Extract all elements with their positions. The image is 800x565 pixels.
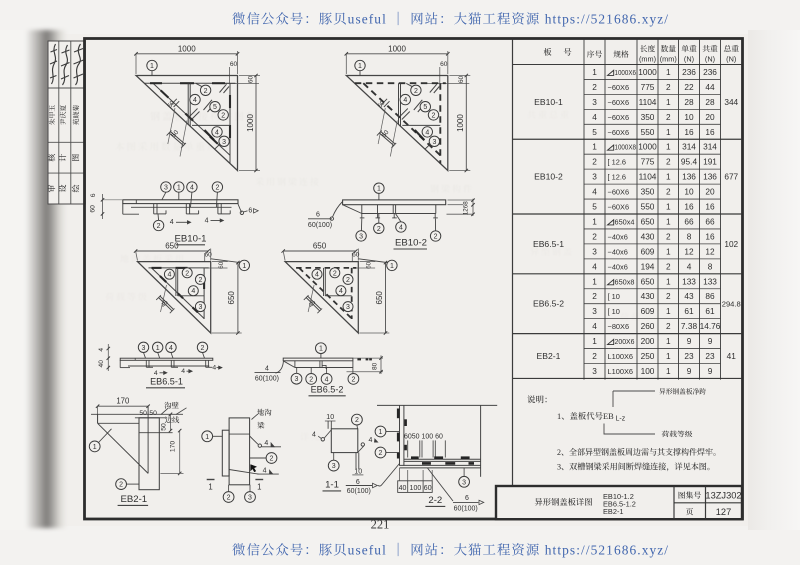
svg-text:1000X8: 1000X8 <box>615 143 637 152</box>
svg-text:2: 2 <box>333 270 337 277</box>
svg-text:86: 86 <box>705 291 715 301</box>
svg-text:1: 1 <box>242 263 246 270</box>
svg-text:EB10-1: EB10-1 <box>175 234 207 245</box>
svg-text:EB6.5-1: EB6.5-1 <box>533 239 564 249</box>
svg-text:[ 10: [ 10 <box>608 292 620 301</box>
svg-text:EB2-1: EB2-1 <box>603 507 624 516</box>
svg-text:8: 8 <box>463 201 470 205</box>
svg-text:2: 2 <box>592 351 597 361</box>
svg-text:[ 10: [ 10 <box>608 307 620 316</box>
svg-text:22: 22 <box>684 82 694 92</box>
svg-text:1104: 1104 <box>639 172 657 182</box>
svg-text:40: 40 <box>98 360 105 368</box>
svg-text:1: 1 <box>666 67 671 77</box>
svg-text:2: 2 <box>666 187 671 197</box>
svg-text:1: 1 <box>379 429 383 436</box>
svg-text:2-2: 2-2 <box>428 495 442 506</box>
svg-text:5: 5 <box>592 127 597 137</box>
svg-text:191: 191 <box>703 157 717 167</box>
svg-text:200X6: 200X6 <box>615 337 635 346</box>
svg-text:1: 1 <box>666 336 671 346</box>
svg-text:44: 44 <box>705 82 715 92</box>
svg-text:133: 133 <box>703 276 717 286</box>
svg-text:绘: 绘 <box>71 185 82 193</box>
svg-text:60(100): 60(100) <box>255 376 279 383</box>
svg-text:43: 43 <box>684 291 694 301</box>
svg-text:3、双槽钢梁采用间断焊缝连接，详见本图。: 3、双槽钢梁采用间断焊缝连接，详见本图。 <box>557 461 715 473</box>
svg-text:16: 16 <box>705 127 715 137</box>
svg-text:60: 60 <box>218 261 225 269</box>
svg-text:4: 4 <box>212 364 216 371</box>
svg-text:地沟: 地沟 <box>257 407 272 418</box>
svg-text:60: 60 <box>424 485 432 492</box>
svg-text:3: 3 <box>142 345 146 352</box>
svg-text:1-1: 1-1 <box>325 480 339 491</box>
svg-text:[ 12.6: [ 12.6 <box>608 173 627 182</box>
svg-text:5: 5 <box>592 202 597 212</box>
svg-text:1000: 1000 <box>638 142 657 152</box>
svg-text:6050 100 60: 6050 100 60 <box>404 434 443 441</box>
svg-text:5: 5 <box>213 104 217 111</box>
svg-text:2: 2 <box>432 112 436 119</box>
svg-text:23: 23 <box>684 351 694 361</box>
svg-text:2: 2 <box>227 495 231 502</box>
svg-text:EB10-2: EB10-2 <box>534 172 563 182</box>
svg-text:650: 650 <box>641 216 655 226</box>
svg-text:200: 200 <box>641 336 655 346</box>
svg-text:L100X6: L100X6 <box>608 367 633 376</box>
svg-text:350: 350 <box>641 112 655 122</box>
svg-text:−40x6: −40x6 <box>608 262 628 271</box>
svg-text:2: 2 <box>270 456 274 463</box>
svg-text:1: 1 <box>666 351 671 361</box>
svg-text:4: 4 <box>169 345 173 352</box>
svg-text:775: 775 <box>641 157 655 167</box>
svg-text:1: 1 <box>666 127 671 137</box>
svg-text:170: 170 <box>116 397 130 406</box>
svg-text:430: 430 <box>641 231 655 241</box>
svg-text:6: 6 <box>465 495 469 502</box>
svg-text:4: 4 <box>399 225 403 232</box>
svg-text:4: 4 <box>592 321 597 331</box>
svg-text:2、全部异型钢盖板周边需与其支撑构件焊牢。: 2、全部异型钢盖板周边需与其支撑构件焊牢。 <box>557 446 721 458</box>
svg-text:66: 66 <box>684 216 694 226</box>
svg-text:4: 4 <box>403 97 407 104</box>
svg-text:朱甲玉: 朱甲玉 <box>47 105 57 126</box>
svg-text:12: 12 <box>705 246 715 256</box>
svg-text:294.8: 294.8 <box>722 300 741 309</box>
svg-text:2: 2 <box>666 157 671 167</box>
svg-text:3: 3 <box>222 139 226 146</box>
svg-text:审: 审 <box>47 185 58 193</box>
svg-text:550: 550 <box>641 127 655 137</box>
svg-text:8: 8 <box>687 231 692 241</box>
svg-text:1: 1 <box>592 67 597 77</box>
svg-text:共重总重: 共重总重 <box>527 108 571 121</box>
svg-text:荷载等级: 荷载等级 <box>105 290 149 303</box>
svg-text:3: 3 <box>248 495 252 502</box>
svg-text:3: 3 <box>592 366 597 376</box>
svg-text:650: 650 <box>227 291 236 305</box>
svg-text:6: 6 <box>356 479 360 486</box>
svg-text:(N): (N) <box>705 55 715 64</box>
svg-text:荷载等级: 荷载等级 <box>662 430 693 440</box>
svg-text:10: 10 <box>684 187 694 197</box>
svg-text:EB6.5-1: EB6.5-1 <box>150 376 183 386</box>
svg-text:异形钢盖板净跨: 异形钢盖板净跨 <box>659 387 706 397</box>
svg-text:1: 1 <box>666 142 671 152</box>
svg-text:4: 4 <box>170 219 174 226</box>
svg-text:4: 4 <box>205 218 209 225</box>
svg-text:3: 3 <box>359 233 363 240</box>
svg-text:EB2-1: EB2-1 <box>537 351 561 361</box>
svg-text:314: 314 <box>682 142 696 152</box>
svg-text:页: 页 <box>686 507 694 518</box>
svg-text:10: 10 <box>684 112 694 122</box>
svg-text:136: 136 <box>703 172 717 182</box>
svg-text:2: 2 <box>346 277 350 284</box>
svg-text:344: 344 <box>724 97 738 107</box>
svg-text:1000: 1000 <box>178 44 196 53</box>
svg-text:1: 1 <box>93 444 97 451</box>
svg-text:(mm): (mm) <box>639 55 656 64</box>
svg-text:4: 4 <box>687 261 692 271</box>
svg-text:异形钢盖板详图: 异形钢盖板详图 <box>535 496 593 508</box>
svg-text:号: 号 <box>563 46 571 58</box>
svg-text:1104: 1104 <box>639 97 657 107</box>
svg-text:650: 650 <box>375 291 384 305</box>
svg-text:4: 4 <box>191 288 195 295</box>
svg-text:2: 2 <box>414 88 418 95</box>
svg-text:1: 1 <box>666 202 671 212</box>
svg-text:4: 4 <box>190 185 194 192</box>
svg-text:16: 16 <box>684 202 694 212</box>
svg-text:60: 60 <box>366 261 373 269</box>
svg-text:8: 8 <box>708 261 713 271</box>
svg-text:95.4: 95.4 <box>681 157 698 167</box>
svg-text:1: 1 <box>208 483 212 492</box>
svg-text:28: 28 <box>684 97 694 107</box>
svg-text:钢梁构件: 钢梁构件 <box>430 182 474 195</box>
svg-text:2: 2 <box>157 223 161 230</box>
svg-text:4: 4 <box>315 272 319 279</box>
svg-text:6: 6 <box>90 193 97 197</box>
svg-text:60(100): 60(100) <box>308 222 332 229</box>
svg-text:9: 9 <box>687 366 692 376</box>
svg-text:说明：: 说明： <box>527 394 553 406</box>
svg-text:136: 136 <box>682 172 696 182</box>
svg-text:2: 2 <box>666 291 671 301</box>
svg-text:2: 2 <box>592 157 597 167</box>
svg-text:(N): (N) <box>684 55 694 64</box>
svg-text:4: 4 <box>215 129 219 136</box>
svg-text:3: 3 <box>295 376 299 383</box>
svg-text:2: 2 <box>198 277 202 284</box>
svg-text:4: 4 <box>98 348 105 352</box>
svg-text:20: 20 <box>705 187 715 197</box>
svg-text:2: 2 <box>119 482 123 489</box>
svg-text:650: 650 <box>313 242 327 251</box>
svg-text:1: 1 <box>592 142 597 152</box>
svg-text:地沟盖板采用: 地沟盖板采用 <box>120 252 186 265</box>
svg-text:4: 4 <box>263 467 267 474</box>
svg-text:13ZJ302: 13ZJ302 <box>705 490 741 500</box>
svg-text:60: 60 <box>248 76 255 84</box>
svg-text:−60X6: −60X6 <box>608 128 630 137</box>
svg-text:梁: 梁 <box>257 420 265 431</box>
svg-text:2: 2 <box>215 185 219 192</box>
svg-text:2: 2 <box>666 321 671 331</box>
svg-text:4: 4 <box>369 437 373 444</box>
svg-text:650: 650 <box>165 242 179 251</box>
svg-text:[ 12.6: [ 12.6 <box>608 158 627 167</box>
svg-text:2: 2 <box>351 376 355 383</box>
svg-text:(N): (N) <box>726 55 736 64</box>
svg-text:4: 4 <box>265 366 269 373</box>
svg-text:1: 1 <box>666 276 671 286</box>
svg-text:66: 66 <box>705 216 715 226</box>
svg-text:3: 3 <box>332 463 336 470</box>
svg-text:1: 1 <box>666 97 671 107</box>
svg-text:3: 3 <box>592 97 597 107</box>
svg-text:EB6.5-2: EB6.5-2 <box>311 384 344 394</box>
svg-text:−40x6: −40x6 <box>608 232 628 241</box>
svg-text:50: 50 <box>149 410 157 417</box>
svg-text:3: 3 <box>346 304 350 311</box>
svg-text:2: 2 <box>666 112 671 122</box>
svg-text:2: 2 <box>592 231 597 241</box>
svg-text:−60X6: −60X6 <box>608 188 630 197</box>
svg-text:133: 133 <box>682 276 696 286</box>
svg-text:2: 2 <box>377 226 381 233</box>
svg-text:50: 50 <box>139 410 147 417</box>
svg-text:4: 4 <box>193 97 197 104</box>
svg-text:微信公众号：豚贝useful ｜ 网站：大猫工程资源 htt: 微信公众号：豚贝useful ｜ 网站：大猫工程资源 https://52168… <box>232 540 668 559</box>
svg-text:2: 2 <box>666 261 671 271</box>
svg-text:EB10-2: EB10-2 <box>395 238 427 249</box>
svg-text:61: 61 <box>705 306 715 316</box>
svg-text:1: 1 <box>666 172 671 182</box>
svg-text:677: 677 <box>724 172 738 182</box>
svg-text:250: 250 <box>641 351 655 361</box>
svg-text:2: 2 <box>666 231 671 241</box>
svg-text:60: 60 <box>230 61 238 68</box>
svg-text:2: 2 <box>204 88 208 95</box>
svg-text:194: 194 <box>641 261 655 271</box>
svg-text:4: 4 <box>325 376 329 383</box>
svg-text:核: 核 <box>47 154 58 162</box>
svg-text:100: 100 <box>410 485 422 492</box>
svg-text:4: 4 <box>339 288 343 295</box>
svg-text:7.38: 7.38 <box>681 321 698 331</box>
svg-text:1: 1 <box>666 366 671 376</box>
svg-text:16: 16 <box>705 202 715 212</box>
svg-text:规格: 规格 <box>613 49 629 60</box>
svg-text:1: 1 <box>666 306 671 316</box>
svg-text:L-z: L-z <box>616 415 626 422</box>
svg-text:尹庆夏: 尹庆夏 <box>58 105 68 126</box>
svg-text:EB10-1: EB10-1 <box>534 97 563 107</box>
svg-text:1: 1 <box>592 276 597 286</box>
svg-text:23: 23 <box>705 351 715 361</box>
svg-text:127: 127 <box>716 507 732 517</box>
svg-text:61: 61 <box>684 306 694 316</box>
svg-text:9: 9 <box>708 336 713 346</box>
svg-text:4: 4 <box>592 187 597 197</box>
svg-text:80: 80 <box>371 362 378 370</box>
svg-text:图集号: 图集号 <box>678 490 702 501</box>
svg-text:4: 4 <box>312 432 316 439</box>
svg-text:609: 609 <box>641 306 655 316</box>
svg-text:1: 1 <box>592 336 597 346</box>
svg-text:EB2-1: EB2-1 <box>120 494 147 505</box>
svg-text:650: 650 <box>641 276 655 286</box>
svg-text:微信公众号：豚贝useful ｜ 网站：大猫工程资源 htt: 微信公众号：豚贝useful ｜ 网站：大猫工程资源 https://52168… <box>232 9 668 28</box>
svg-text:2: 2 <box>185 270 189 277</box>
svg-text:3: 3 <box>164 185 168 192</box>
svg-text:9: 9 <box>687 336 692 346</box>
svg-text:L100X6: L100X6 <box>608 352 633 361</box>
svg-text:序号: 序号 <box>587 49 603 60</box>
svg-text:775: 775 <box>641 82 655 92</box>
svg-text:3: 3 <box>592 246 597 256</box>
svg-text:1: 1 <box>257 483 261 492</box>
svg-text:1: 1 <box>358 63 362 70</box>
svg-text:1: 1 <box>592 216 597 226</box>
svg-text:60: 60 <box>458 76 465 84</box>
svg-text:60: 60 <box>440 61 448 68</box>
svg-text:236: 236 <box>682 67 696 77</box>
svg-text:1、盖板代号EB: 1、盖板代号EB <box>557 410 614 422</box>
svg-text:1000: 1000 <box>246 114 255 132</box>
svg-text:20: 20 <box>705 112 715 122</box>
svg-text:236: 236 <box>703 67 717 77</box>
svg-text:本图采用数量单重周边: 本图采用数量单重周边 <box>115 139 230 153</box>
svg-text:2: 2 <box>592 291 597 301</box>
svg-text:4: 4 <box>592 112 597 122</box>
svg-text:3: 3 <box>592 172 597 182</box>
svg-text:430: 430 <box>641 291 655 301</box>
svg-text:设: 设 <box>58 185 69 193</box>
svg-text:1: 1 <box>205 434 209 441</box>
svg-text:EB6.5-2: EB6.5-2 <box>533 299 564 309</box>
svg-text:9: 9 <box>708 366 713 376</box>
svg-text:260: 260 <box>641 321 655 331</box>
svg-text:3: 3 <box>198 304 202 311</box>
svg-text:102: 102 <box>724 239 738 249</box>
svg-text:1000: 1000 <box>388 44 406 53</box>
svg-text:650x8: 650x8 <box>615 277 635 286</box>
svg-text:2: 2 <box>221 112 225 119</box>
svg-text:数量: 数量 <box>660 44 676 55</box>
svg-text:4: 4 <box>181 368 185 375</box>
svg-text:总重: 总重 <box>723 44 739 55</box>
svg-text:4: 4 <box>592 261 597 271</box>
svg-text:单重: 单重 <box>681 44 697 55</box>
svg-text:16: 16 <box>705 231 715 241</box>
svg-text:40: 40 <box>399 485 407 492</box>
svg-text:50: 50 <box>161 423 168 431</box>
svg-text:−60X6: −60X6 <box>608 203 630 212</box>
svg-text:2: 2 <box>592 82 597 92</box>
svg-text:−60X6: −60X6 <box>608 113 630 122</box>
svg-text:3: 3 <box>592 306 597 316</box>
svg-text:1000X6: 1000X6 <box>615 68 637 77</box>
svg-text:2: 2 <box>309 376 313 383</box>
svg-text:长度: 长度 <box>640 44 656 55</box>
svg-text:126: 126 <box>463 204 470 215</box>
svg-text:−60X6: −60X6 <box>608 98 630 107</box>
svg-text:41: 41 <box>727 351 737 361</box>
svg-text:170: 170 <box>170 441 177 453</box>
svg-text:(mm): (mm) <box>660 55 677 64</box>
svg-text:共重: 共重 <box>702 44 718 55</box>
svg-text:6: 6 <box>316 212 320 219</box>
svg-text:1: 1 <box>156 345 160 352</box>
svg-text:苑晓菊: 苑晓菊 <box>71 105 81 126</box>
svg-text:3: 3 <box>432 139 436 146</box>
svg-text:6: 6 <box>248 208 252 215</box>
svg-text:550: 550 <box>641 202 655 212</box>
svg-text:−40x6: −40x6 <box>608 247 628 256</box>
svg-text:314: 314 <box>703 142 717 152</box>
svg-text:100: 100 <box>641 366 655 376</box>
svg-text:2: 2 <box>434 234 438 241</box>
svg-text:1: 1 <box>319 346 323 353</box>
svg-text:650x4: 650x4 <box>615 217 635 226</box>
svg-text:10: 10 <box>326 414 334 421</box>
svg-text:2: 2 <box>355 417 359 424</box>
svg-text:2: 2 <box>666 82 671 92</box>
svg-text:609: 609 <box>641 246 655 256</box>
svg-text:14.76: 14.76 <box>700 321 721 331</box>
svg-text:28: 28 <box>705 97 715 107</box>
svg-text:−80X6: −80X6 <box>608 322 630 331</box>
svg-text:4: 4 <box>264 440 268 447</box>
svg-text:350: 350 <box>641 187 655 197</box>
svg-text:钢盖板焊接构件图集: 钢盖板焊接构件图集 <box>150 108 258 123</box>
svg-text:1: 1 <box>150 63 154 70</box>
svg-text:1000: 1000 <box>456 114 465 132</box>
svg-text:1: 1 <box>177 185 181 192</box>
svg-text:1: 1 <box>377 186 381 193</box>
svg-text:−60X6: −60X6 <box>608 83 630 92</box>
svg-text:采用钢梁连接: 采用钢梁连接 <box>255 175 321 188</box>
svg-text:板: 板 <box>543 46 552 58</box>
svg-text:4: 4 <box>425 129 429 136</box>
svg-text:3: 3 <box>462 479 466 486</box>
svg-text:1: 1 <box>666 246 671 256</box>
svg-text:1: 1 <box>390 263 394 270</box>
svg-text:60(100): 60(100) <box>347 488 371 495</box>
svg-text:5: 5 <box>423 104 427 111</box>
svg-text:1000: 1000 <box>638 67 657 77</box>
svg-text:60(100): 60(100) <box>454 506 478 513</box>
svg-text:计: 计 <box>58 154 69 162</box>
svg-text:图: 图 <box>71 154 82 162</box>
svg-text:2: 2 <box>201 345 205 352</box>
svg-text:1: 1 <box>666 216 671 226</box>
svg-text:16: 16 <box>684 127 694 137</box>
svg-text:60: 60 <box>90 205 97 213</box>
svg-text:2: 2 <box>379 450 383 457</box>
svg-text:4: 4 <box>167 272 171 279</box>
svg-text:12: 12 <box>684 246 694 256</box>
